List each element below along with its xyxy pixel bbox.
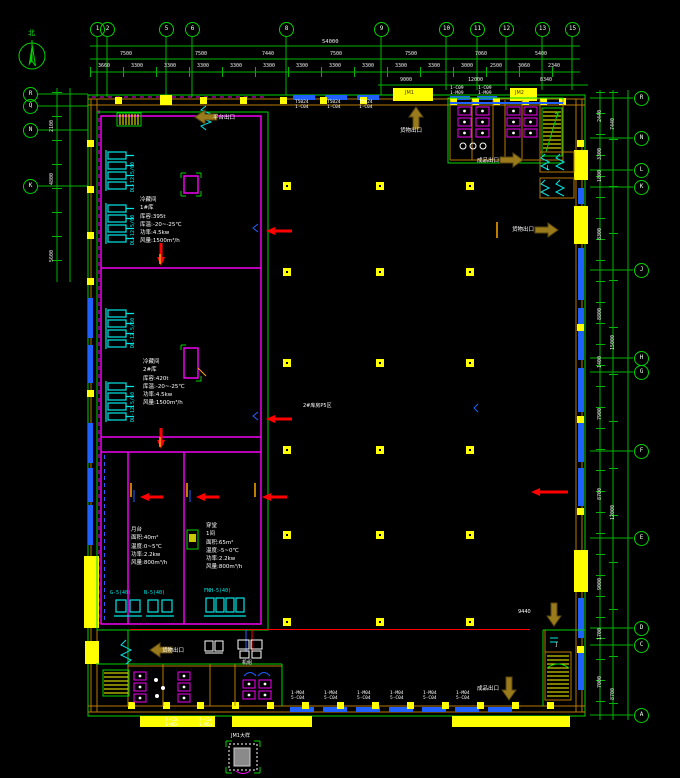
room1-annotation: 冷藏间1#库库容:395t库温:-20~-25℃功率:4.5kw风量:1500m… xyxy=(140,196,182,246)
grid-bubble: 6 xyxy=(185,22,200,37)
grid-bubble: 9 xyxy=(374,22,389,37)
dim-text: 4800 xyxy=(50,173,56,185)
exit-label: 成品出口 xyxy=(477,156,499,164)
exit-label: 平台出口 xyxy=(213,113,235,121)
north-compass-icon xyxy=(19,40,45,69)
annotation-line: 穿堂 xyxy=(206,522,242,530)
grid-bubble: J xyxy=(634,263,649,278)
equipment-label: DL-12.5/60 xyxy=(131,318,137,348)
grid-bubble: F xyxy=(634,444,649,459)
annotation-line: 库温:-20~-25℃ xyxy=(143,383,185,391)
grid-bubble: 12 xyxy=(499,22,514,37)
floor-label: J xyxy=(547,166,548,172)
dim-text: 3300 xyxy=(395,64,407,70)
annotation-line: 库容:420t xyxy=(143,375,185,383)
annotation-line: 1#库 xyxy=(140,204,182,212)
door-leaf-symbols xyxy=(131,222,497,502)
annotation-line: 功率:4.5kw xyxy=(140,229,182,237)
dim-text: 9000 xyxy=(598,578,604,590)
window-label: 1-M045-C04 xyxy=(456,691,470,701)
grid-bubble: 5 xyxy=(159,22,174,37)
toilets-top-right xyxy=(448,98,563,163)
floor-label: JM2 xyxy=(515,91,524,97)
grid-bubble: 13 xyxy=(535,22,550,37)
floor-label: 2#库房P5区 xyxy=(303,404,332,410)
annotation-line: 功率:2.2kw xyxy=(131,551,167,559)
dim-text: 3300 xyxy=(428,64,440,70)
annotation-line: 1间 xyxy=(206,530,242,538)
window-label: 1-M045-C04 xyxy=(390,691,404,701)
dim-text: 2500 xyxy=(490,64,502,70)
dim-text: 5600 xyxy=(50,250,56,262)
annotation-line: 2#库 xyxy=(143,366,185,374)
grid-bubble: D xyxy=(634,621,649,636)
window-label: 1-M045-C04 xyxy=(423,691,437,701)
exit-label: 货物出口 xyxy=(400,126,422,134)
window-label: 1-C091-M09 xyxy=(450,86,464,96)
dim-text: 7000 xyxy=(598,676,604,688)
window-label: T50241-C04 xyxy=(359,100,373,110)
annotation-line: 冷藏间 xyxy=(140,196,182,204)
annotation-line: 风量:800m³/h xyxy=(206,563,242,571)
annotation-line: 面积:65m² xyxy=(206,539,242,547)
dim-text: 9000 xyxy=(400,78,412,84)
dim-text: 3300 xyxy=(598,148,604,160)
window-label: 1-M045-C04 xyxy=(357,691,371,701)
equipment-label: N-5(40) xyxy=(144,591,165,597)
machine-units xyxy=(205,640,262,658)
window-label: 1-M045-C04 xyxy=(324,691,338,701)
grid-bubble: 2 xyxy=(100,22,115,37)
dim-text: 1800 xyxy=(598,170,604,182)
dim-text: 8300 xyxy=(598,228,604,240)
dim-ticks-right-outer xyxy=(609,92,618,720)
room4-annotation: 穿堂1间面积:65m²温度:-5~0℃功率:2.2kw风量:800m³/h xyxy=(206,522,242,572)
floor-label: JM1大样 xyxy=(231,734,250,740)
grid-bubble: R xyxy=(634,91,649,106)
grid-bubble: C xyxy=(634,638,649,653)
dim-text: 15000 xyxy=(611,335,617,350)
dim-text: 54000 xyxy=(322,39,339,45)
floor-label: 机组 xyxy=(242,661,252,667)
window-label: 7-C041-M04 xyxy=(165,718,179,728)
dim-text: 7500 xyxy=(195,52,207,58)
dim-ticks-right-inner xyxy=(596,92,605,720)
annotation-line: 温度:-5~0℃ xyxy=(206,547,242,555)
window-label: 1-M045-C04 xyxy=(291,691,305,701)
dim-text: 7060 xyxy=(475,52,487,58)
annotation-line: 风量:1500m³/h xyxy=(143,399,185,407)
grid-bubble: L xyxy=(634,163,649,178)
annotation-line: 月台 xyxy=(131,526,167,534)
dim-text: 7440 xyxy=(262,52,274,58)
dim-text: 12000 xyxy=(611,505,617,520)
dim-text: 3300 xyxy=(230,64,242,70)
window-label: T50241-C04 xyxy=(295,100,309,110)
floor-label: JM1 xyxy=(405,91,414,97)
doors-and-columns xyxy=(84,88,588,727)
dim-text: 2440 xyxy=(598,110,604,122)
dim-text: 12000 xyxy=(468,78,483,84)
window-label: 1-C091-M09 xyxy=(478,86,492,96)
annotation-line: 面积:40m² xyxy=(131,534,167,542)
grid-bubble: G xyxy=(634,365,649,380)
floor-label: J xyxy=(556,643,557,649)
grid-bubble: A xyxy=(634,708,649,723)
equipment-label: G-5(40) xyxy=(110,591,131,597)
grid-bubble: K xyxy=(634,180,649,195)
cad-floor-plan: 北 1256891011121315 RQNK RNLKJHGFEDCA 540… xyxy=(0,0,680,778)
dim-text: 3300 xyxy=(362,64,374,70)
dim-text: 7900 xyxy=(598,408,604,420)
detail-figure xyxy=(226,741,260,774)
annotation-line: 功率:4.5kw xyxy=(143,391,185,399)
grid-bubble: E xyxy=(634,531,649,546)
annotation-line: 冷藏间 xyxy=(143,358,185,366)
grid-bubble: H xyxy=(634,351,649,366)
dim-text: 7440 xyxy=(611,118,617,130)
grid-bubble: 11 xyxy=(470,22,485,37)
dim-text: 5400 xyxy=(535,52,547,58)
grid-bubble: K xyxy=(23,179,38,194)
dim-text: 7500 xyxy=(405,52,417,58)
exit-label: 货物出口 xyxy=(162,646,184,654)
dim-text: 8340 xyxy=(540,78,552,84)
equipment-label: DL-12.5/60 xyxy=(131,162,137,192)
annotation-line: 功率:2.2kw xyxy=(206,555,242,563)
equipment-label: DL-12.5/60 xyxy=(131,215,137,245)
annotation-line: 风量:800m³/h xyxy=(131,559,167,567)
room2-annotation: 冷藏间2#库库容:420t库温:-20~-25℃功率:4.5kw风量:1500m… xyxy=(143,358,185,408)
dim-text: 7500 xyxy=(120,52,132,58)
annotation-line: 风量:1500m³/h xyxy=(140,237,182,245)
dim-text: 7500 xyxy=(330,52,342,58)
exit-label: 成品出口 xyxy=(477,684,499,692)
dock-shelters-right xyxy=(540,152,574,198)
dim-text: 3300 xyxy=(131,64,143,70)
dim-text: 3060 xyxy=(518,64,530,70)
window-label: 7-C041-M04 xyxy=(199,718,213,728)
dim-text: 3300 xyxy=(197,64,209,70)
dim-text: 3300 xyxy=(296,64,308,70)
dim-text: 1400 xyxy=(598,356,604,368)
grid-bubble: 15 xyxy=(565,22,580,37)
grid-bubble: Q xyxy=(23,99,38,114)
grid-bubble: N xyxy=(634,131,649,146)
grid-bubble: 8 xyxy=(279,22,294,37)
window-label: T50241-C04 xyxy=(327,100,341,110)
equipment-label: DL-12.5/60 xyxy=(131,392,137,422)
dim-text: 3660 xyxy=(98,64,110,70)
dim-text: 8700 xyxy=(598,488,604,500)
floor-label: 9440 xyxy=(518,610,531,616)
annotation-line: 库温:-20~-25℃ xyxy=(140,221,182,229)
dim-text: 8700 xyxy=(611,688,617,700)
annotation-line: 库容:395t xyxy=(140,213,182,221)
dim-text: 3300 xyxy=(164,64,176,70)
exit-arrows xyxy=(150,107,561,700)
dim-text: 1700 xyxy=(598,628,604,640)
annotation-line: 温度:0~5℃ xyxy=(131,543,167,551)
grid-bubble: N xyxy=(23,123,38,138)
dim-text: 2340 xyxy=(548,64,560,70)
exit-label: 货物出口 xyxy=(512,225,534,233)
plan-linework xyxy=(0,0,680,778)
dim-text: 3300 xyxy=(263,64,275,70)
north-label: 北 xyxy=(28,28,35,38)
dim-text: 2100 xyxy=(50,120,56,132)
stair-bottom-right xyxy=(545,638,571,700)
equipment-label: FNH-5(40) xyxy=(204,589,231,595)
grid-bubble: 10 xyxy=(439,22,454,37)
dim-text: 8800 xyxy=(598,308,604,320)
dim-text: 3000 xyxy=(461,64,473,70)
dim-text: 3300 xyxy=(329,64,341,70)
room3-annotation: 月台面积:40m²温度:0~5℃功率:2.2kw风量:800m³/h xyxy=(131,526,167,567)
